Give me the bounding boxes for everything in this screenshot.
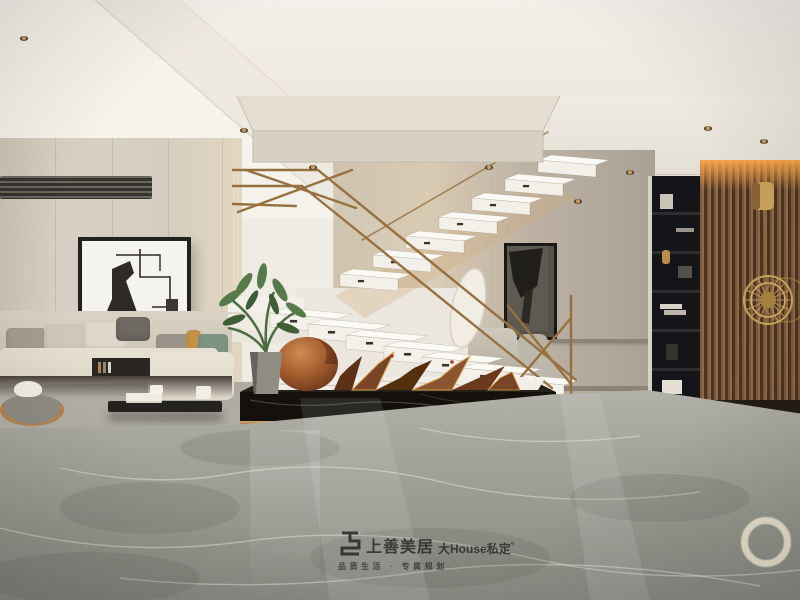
downlight bbox=[574, 199, 582, 204]
brand-watermark: 上善美居大House私定° 品质生活 · 专属规划 bbox=[338, 530, 528, 572]
brand-name: 上善美居 bbox=[366, 540, 434, 556]
living-room-photo: 上善美居大House私定° 品质生活 · 专属规划 bbox=[0, 0, 800, 600]
downlight bbox=[485, 165, 493, 170]
light-ring-reflection bbox=[741, 517, 791, 567]
floor-reflection bbox=[250, 430, 320, 600]
downlight bbox=[309, 165, 317, 170]
downlight bbox=[626, 170, 634, 175]
downlight bbox=[20, 36, 28, 41]
downlight bbox=[760, 139, 768, 144]
downlight bbox=[704, 126, 712, 131]
brand-tagline: 品质生活 · 专属规划 bbox=[338, 561, 528, 572]
degree-mark: ° bbox=[511, 540, 515, 550]
downlight bbox=[240, 128, 248, 133]
brand-logo-icon bbox=[338, 530, 362, 556]
ceiling-bulkhead bbox=[220, 90, 580, 168]
brand-suffix: 大House私定° bbox=[438, 540, 514, 556]
